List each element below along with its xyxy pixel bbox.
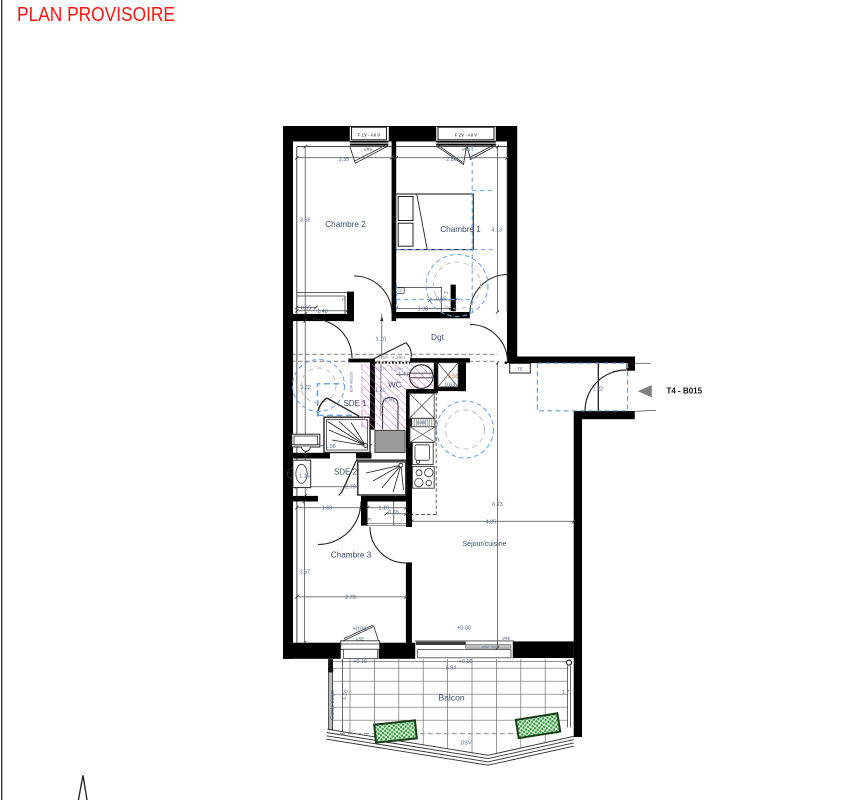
svg-text:1.16: 1.16 xyxy=(299,473,310,479)
svg-text:5.94: 5.94 xyxy=(446,666,457,672)
svg-text:Chambre 3: Chambre 3 xyxy=(331,550,372,559)
svg-text:WC: WC xyxy=(388,380,402,389)
svg-text:TE: TE xyxy=(517,367,523,372)
svg-text:0.65: 0.65 xyxy=(388,510,399,516)
svg-text:1.10: 1.10 xyxy=(376,337,387,343)
svg-text:VRE: VRE xyxy=(462,147,471,152)
svg-text:T4 - B015: T4 - B015 xyxy=(667,387,703,396)
svg-text:SDE 2: SDE 2 xyxy=(334,468,358,477)
svg-text:+0.10: +0.10 xyxy=(459,659,473,665)
svg-text:4.13: 4.13 xyxy=(492,228,503,234)
svg-text:3.57: 3.57 xyxy=(300,570,311,576)
svg-text:PL: PL xyxy=(368,517,373,521)
svg-text:DSV: DSV xyxy=(460,741,471,747)
svg-text:1.40: 1.40 xyxy=(317,309,328,315)
svg-text:Chambre 1: Chambre 1 xyxy=(440,225,481,234)
svg-text:2.79: 2.79 xyxy=(345,595,356,601)
svg-text:PLAN PROVISOIRE: PLAN PROVISOIRE xyxy=(17,3,175,26)
svg-text:0.63: 0.63 xyxy=(445,382,456,388)
svg-text:Garde corps: Garde corps xyxy=(330,690,336,720)
svg-text:Chambre 2: Chambre 2 xyxy=(325,220,366,229)
svg-text:1.22: 1.22 xyxy=(593,386,604,392)
svg-text:VRE: VRE xyxy=(364,147,373,152)
svg-text:F 1V - AII V: F 1V - AII V xyxy=(358,132,381,137)
svg-text:0.65: 0.65 xyxy=(301,305,312,311)
svg-text:6.23: 6.23 xyxy=(492,502,503,508)
svg-text:2.86: 2.86 xyxy=(446,157,457,163)
svg-text:PL: PL xyxy=(444,291,449,295)
svg-text:PSC 2V: PSC 2V xyxy=(482,645,496,649)
svg-text:HSFP : 2.20m: HSFP : 2.20m xyxy=(374,366,403,371)
svg-text:HSP : 2.29m: HSP : 2.29m xyxy=(379,355,405,360)
svg-text:ESP 90x120: ESP 90x120 xyxy=(350,372,354,392)
svg-text:1.69: 1.69 xyxy=(322,505,333,511)
svg-text:VRE: VRE xyxy=(502,636,511,641)
svg-text:1.21: 1.21 xyxy=(375,388,386,394)
svg-text:Dgt: Dgt xyxy=(431,332,445,342)
svg-text:4.05: 4.05 xyxy=(486,520,497,526)
svg-text:2.35: 2.35 xyxy=(339,157,350,163)
svg-text:CD: CD xyxy=(398,289,403,293)
svg-text:1.96: 1.96 xyxy=(325,444,336,450)
svg-text:+0.10: +0.10 xyxy=(353,659,367,665)
svg-text:0.65: 0.65 xyxy=(436,297,447,303)
svg-text:2.79: 2.79 xyxy=(345,485,356,491)
svg-text:1.47: 1.47 xyxy=(398,372,409,378)
svg-text:0.56: 0.56 xyxy=(448,374,459,380)
svg-text:0.61: 0.61 xyxy=(385,398,396,404)
svg-text:3.22: 3.22 xyxy=(300,385,311,391)
svg-text:PL: PL xyxy=(342,298,347,302)
svg-text:F 2V - AII V: F 2V - AII V xyxy=(455,132,478,137)
svg-text:Balcon: Balcon xyxy=(438,693,464,703)
svg-text:+0.00: +0.00 xyxy=(353,627,367,633)
svg-text:VRE: VRE xyxy=(356,636,365,641)
svg-text:0.69: 0.69 xyxy=(417,420,426,425)
svg-text:SDE 1: SDE 1 xyxy=(343,399,367,408)
svg-text:+0.00: +0.00 xyxy=(457,626,471,632)
svg-text:1.38: 1.38 xyxy=(418,306,429,312)
svg-text:Séjour/cuisine: Séjour/cuisine xyxy=(463,541,507,548)
svg-text:3.56: 3.56 xyxy=(300,218,311,224)
svg-text:1.7: 1.7 xyxy=(562,690,570,696)
